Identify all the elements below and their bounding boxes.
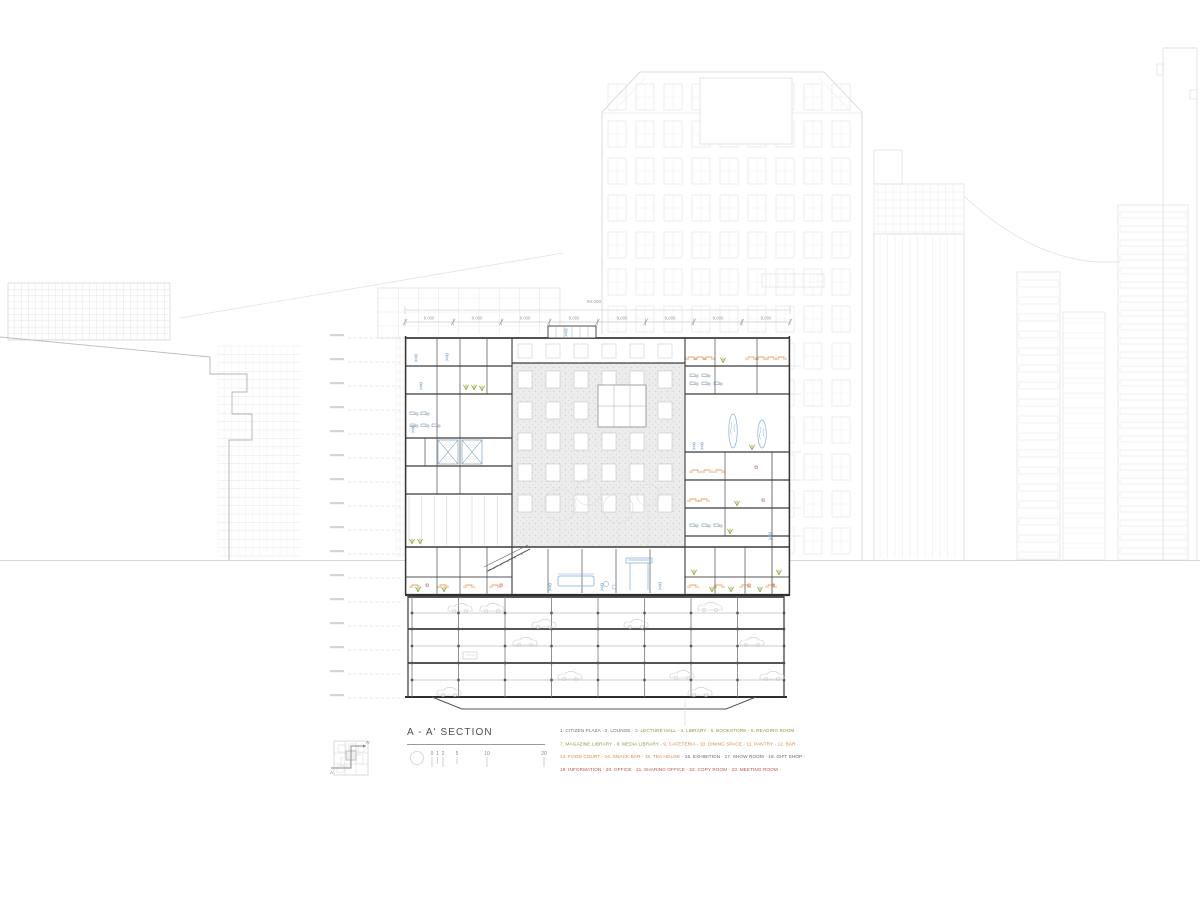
legend-separator: - [802, 755, 805, 760]
legend-item: 10. DINING SPACE [700, 742, 742, 747]
drawing-title: A - A' SECTION [407, 727, 567, 738]
title-block: A - A' SECTION 0 1 2 5 10 20 [407, 727, 567, 774]
legend-line: 7. MAGAZINE LIBRARY - 8. MEDIA LIBRARY -… [560, 738, 803, 751]
bay-dim-label: 8.000 [569, 316, 580, 321]
legend-item: 20. OFFICE [606, 768, 632, 773]
legend-item: 17. SHOW ROOM [725, 755, 764, 760]
bay-dim-label: 8.000 [472, 316, 483, 321]
legend-item: 14. SNACK BAR [605, 755, 641, 760]
scale-ticks [432, 757, 544, 767]
scale-number: 0 [431, 751, 434, 757]
legend-item: 5. BOOKSTORE [711, 729, 747, 734]
legend-item: 22. COPY ROOM [689, 768, 727, 773]
legend-item: 11. PANTRY [746, 742, 773, 747]
scale-number: 20 [541, 751, 547, 757]
bay-dim-label: 8.000 [424, 316, 435, 321]
north-circle-icon [411, 752, 424, 765]
legend-line: 1. CITIZEN PLAZA - 2. LOUNGE - 3. LECTUR… [560, 725, 803, 738]
bay-dim-label: 8.000 [761, 316, 772, 321]
legend-item: 8. MEDIA LIBRARY [617, 742, 659, 747]
room-legend: 1. CITIZEN PLAZA - 2. LOUNGE - 3. LECTUR… [560, 725, 803, 777]
legend-line: 19. INFORMATION - 20. OFFICE - 21. SHARI… [560, 764, 803, 777]
bay-dim-label: 8.000 [520, 316, 531, 321]
legend-item: 16. EXHIBITION [685, 755, 720, 760]
scale-number: 10 [484, 751, 490, 757]
legend-item: 18. GIFT SHOP [768, 755, 802, 760]
title-rule [407, 744, 545, 745]
total-dim-label: 64.000 [587, 299, 601, 304]
legend-item: 7. MAGAZINE LIBRARY [560, 742, 612, 747]
keyplan-label-a: A [330, 770, 333, 775]
legend-item: 19. INFORMATION [560, 768, 601, 773]
scale-number: 2 [442, 751, 445, 757]
legend-item: 12. BAR [778, 742, 796, 747]
bay-dim-label: 8.000 [713, 316, 724, 321]
legend-item: 1. CITIZEN PLAZA [560, 729, 601, 734]
legend-separator: - [796, 742, 799, 747]
scale-bar: 0 1 2 5 10 20 [407, 746, 567, 774]
scale-number: 5 [456, 751, 459, 757]
scale-numbers: 0 1 2 5 10 20 [431, 751, 547, 757]
bay-dim-label: 8.000 [617, 316, 628, 321]
legend-item: 4. LIBRARY [680, 729, 706, 734]
keyplan-label-a-prime: A' [366, 740, 370, 745]
key-plan: A A' [330, 736, 374, 780]
bay-dim-label: 8.000 [665, 316, 676, 321]
hill-line [180, 253, 563, 318]
legend-item: 6. READING ROOM [751, 729, 795, 734]
drawing-sheet: 8.000 8.000 8.000 8.000 8.000 8.000 8.00… [0, 0, 1200, 912]
legend-separator: - [778, 768, 781, 773]
legend-separator: - [794, 729, 797, 734]
legend-item: 15. TEA HOUSE [645, 755, 681, 760]
catenary-line [964, 196, 1120, 262]
legend-item: 21. SHARING OFFICE [636, 768, 685, 773]
legend-item: 9. CAFETERIA [663, 742, 695, 747]
legend-item: 13. FOOD COURT [560, 755, 600, 760]
legend-line: 13. FOOD COURT - 14. SNACK BAR - 15. TEA… [560, 751, 803, 764]
scale-number: 1 [436, 751, 439, 757]
legend-item: 23. MEETING ROOM [732, 768, 778, 773]
building-section [405, 326, 790, 709]
legend-item: 2. LOUNGE [605, 729, 631, 734]
legend-item: 3. LECTURE HALL [635, 729, 676, 734]
